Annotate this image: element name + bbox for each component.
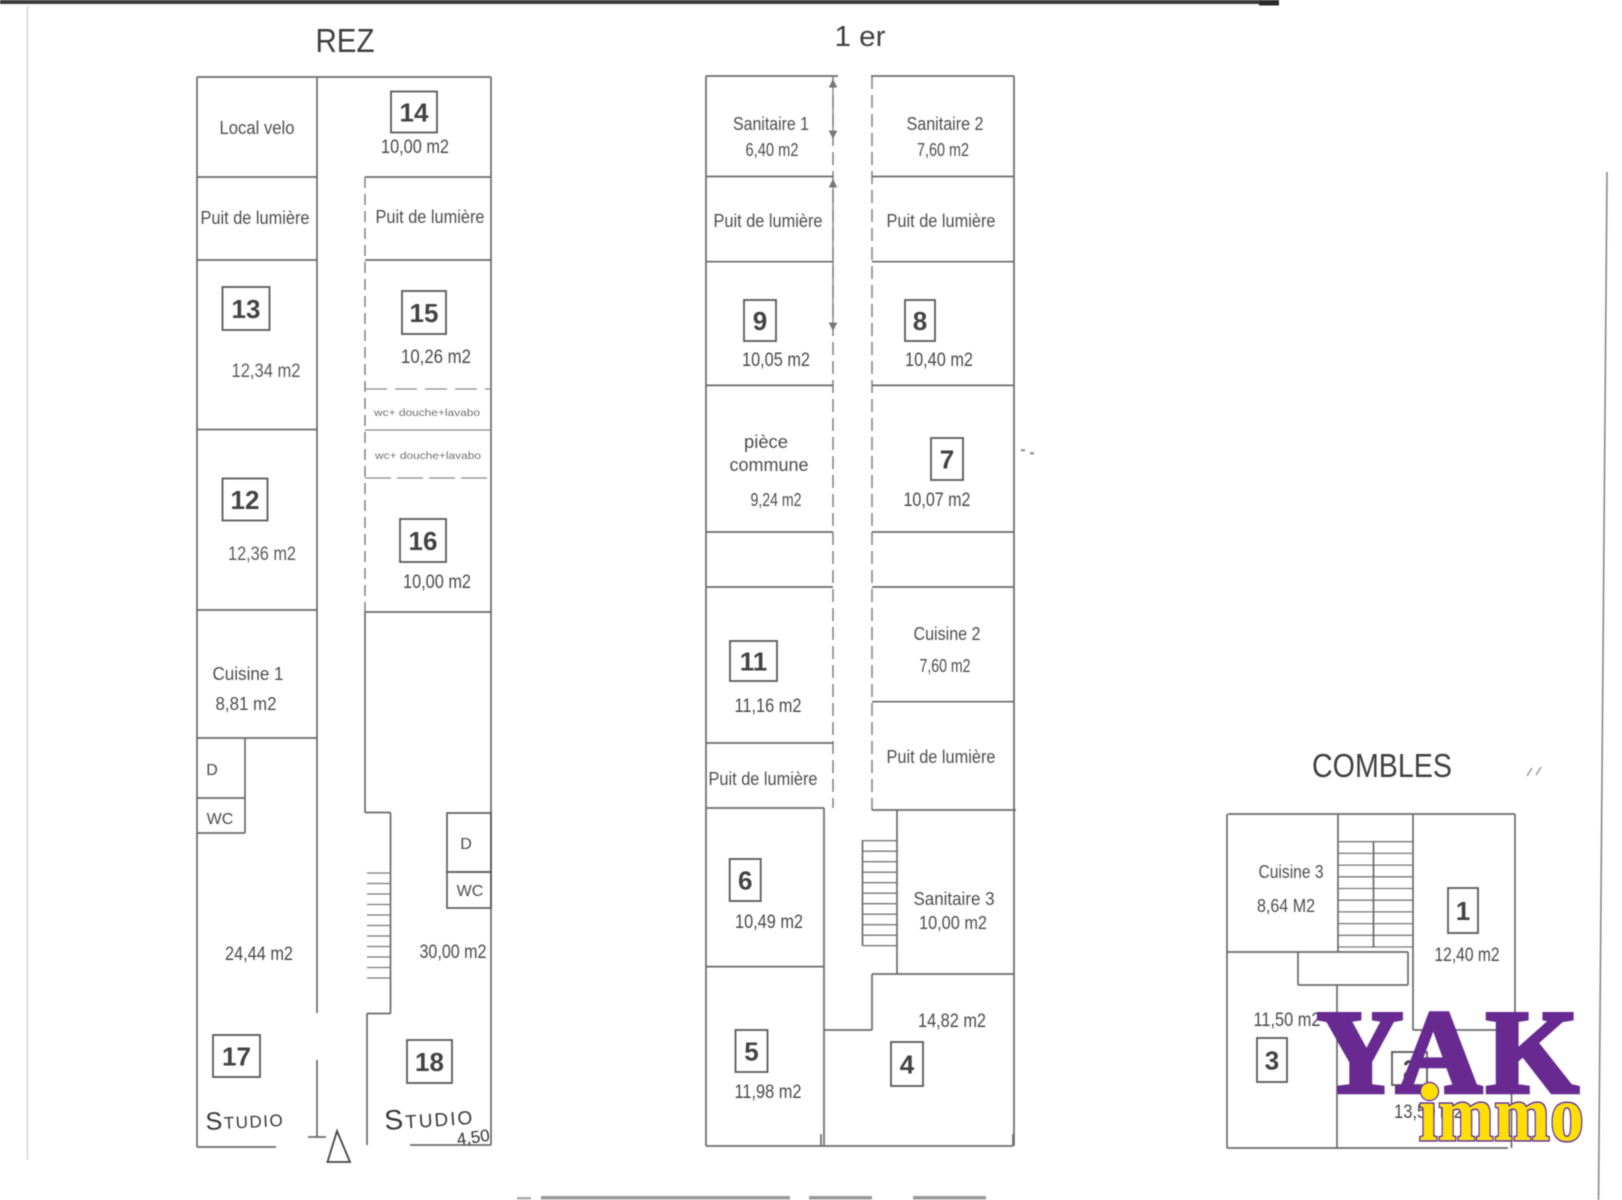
svg-text:Puit de lumière: Puit de lumière xyxy=(887,211,996,231)
svg-text:8,81 m2: 8,81 m2 xyxy=(216,694,277,714)
svg-text:Puit de lumière: Puit de lumière xyxy=(709,769,818,789)
svg-text:11,98 m2: 11,98 m2 xyxy=(735,1082,802,1103)
svg-text:8: 8 xyxy=(913,306,927,336)
svg-text:Sanitaire 1: Sanitaire 1 xyxy=(733,114,809,134)
svg-text:11,50 m2: 11,50 m2 xyxy=(1254,1010,1321,1031)
svg-text:D: D xyxy=(206,762,218,779)
svg-text:COMBLES: COMBLES xyxy=(1312,747,1452,784)
svg-text:8,64 M2: 8,64 M2 xyxy=(1257,896,1315,916)
svg-text:10,40 m2: 10,40 m2 xyxy=(905,350,973,371)
svg-text:commune: commune xyxy=(730,455,809,475)
svg-text:5: 5 xyxy=(744,1036,758,1066)
svg-text:Puit de lumière: Puit de lumière xyxy=(714,211,823,231)
svg-text:9: 9 xyxy=(753,306,767,336)
svg-text:14,82 m2: 14,82 m2 xyxy=(918,1011,986,1032)
svg-text:10,00 m2: 10,00 m2 xyxy=(381,137,449,158)
svg-text:11: 11 xyxy=(740,646,768,676)
svg-text:10,00 m2: 10,00 m2 xyxy=(403,572,471,593)
svg-text:3: 3 xyxy=(1265,1045,1279,1075)
svg-text:17: 17 xyxy=(222,1041,251,1071)
svg-text:14: 14 xyxy=(400,97,429,127)
svg-text:7,60 m2: 7,60 m2 xyxy=(917,140,969,160)
svg-text:Sanitaire 2: Sanitaire 2 xyxy=(907,114,984,134)
svg-text:wc+ douche+lavabo: wc+ douche+lavabo xyxy=(374,450,481,462)
svg-text:10,05 m2: 10,05 m2 xyxy=(742,350,810,371)
svg-text:Cuisine 2: Cuisine 2 xyxy=(914,624,981,644)
svg-text:Local velo: Local velo xyxy=(220,118,295,138)
svg-text:4: 4 xyxy=(900,1049,915,1079)
svg-text:16: 16 xyxy=(409,526,438,556)
svg-text:Puit de lumière: Puit de lumière xyxy=(376,207,485,227)
svg-text:WC: WC xyxy=(457,883,484,900)
svg-text:10,00 m2: 10,00 m2 xyxy=(919,913,987,933)
svg-text:7,60 m2: 7,60 m2 xyxy=(920,656,971,676)
svg-text:12,36 m2: 12,36 m2 xyxy=(228,544,296,565)
svg-text:7: 7 xyxy=(940,444,954,474)
svg-text:wc+ douche+lavabo: wc+ douche+lavabo xyxy=(373,407,480,419)
svg-text:Cuisine 1: Cuisine 1 xyxy=(213,664,284,684)
svg-text:10,26 m2: 10,26 m2 xyxy=(401,347,471,368)
svg-text:D: D xyxy=(460,836,472,853)
svg-text:Puit de lumière: Puit de lumière xyxy=(887,747,996,767)
svg-text:Cuisine 3: Cuisine 3 xyxy=(1259,862,1324,882)
svg-text:REZ: REZ xyxy=(316,22,375,59)
svg-text:13: 13 xyxy=(232,294,261,324)
svg-text:24,44 m2: 24,44 m2 xyxy=(225,944,293,965)
svg-text:pièce: pièce xyxy=(744,432,788,452)
svg-text:Sanitaire 3: Sanitaire 3 xyxy=(914,889,995,909)
svg-text:1: 1 xyxy=(1456,896,1470,926)
svg-text:12,34 m2: 12,34 m2 xyxy=(232,361,301,382)
svg-text:10,49 m2: 10,49 m2 xyxy=(735,912,803,933)
svg-text:6,40 m2: 6,40 m2 xyxy=(746,140,799,160)
svg-text:12: 12 xyxy=(231,485,260,515)
svg-text:WC: WC xyxy=(207,811,234,828)
svg-text:1 er: 1 er xyxy=(835,21,886,53)
svg-text:Puit de lumière: Puit de lumière xyxy=(201,208,310,228)
svg-text:ımmo: ımmo xyxy=(1419,1071,1584,1157)
svg-text:9,24 m2: 9,24 m2 xyxy=(751,490,802,510)
svg-text:11,16 m2: 11,16 m2 xyxy=(735,696,802,717)
svg-text:6: 6 xyxy=(738,865,752,895)
svg-text:12,40 m2: 12,40 m2 xyxy=(1435,945,1500,966)
svg-text:18: 18 xyxy=(415,1047,444,1077)
svg-text:30,00 m2: 30,00 m2 xyxy=(420,942,487,963)
svg-text:10,07 m2: 10,07 m2 xyxy=(904,490,971,511)
svg-text:15: 15 xyxy=(410,298,439,328)
